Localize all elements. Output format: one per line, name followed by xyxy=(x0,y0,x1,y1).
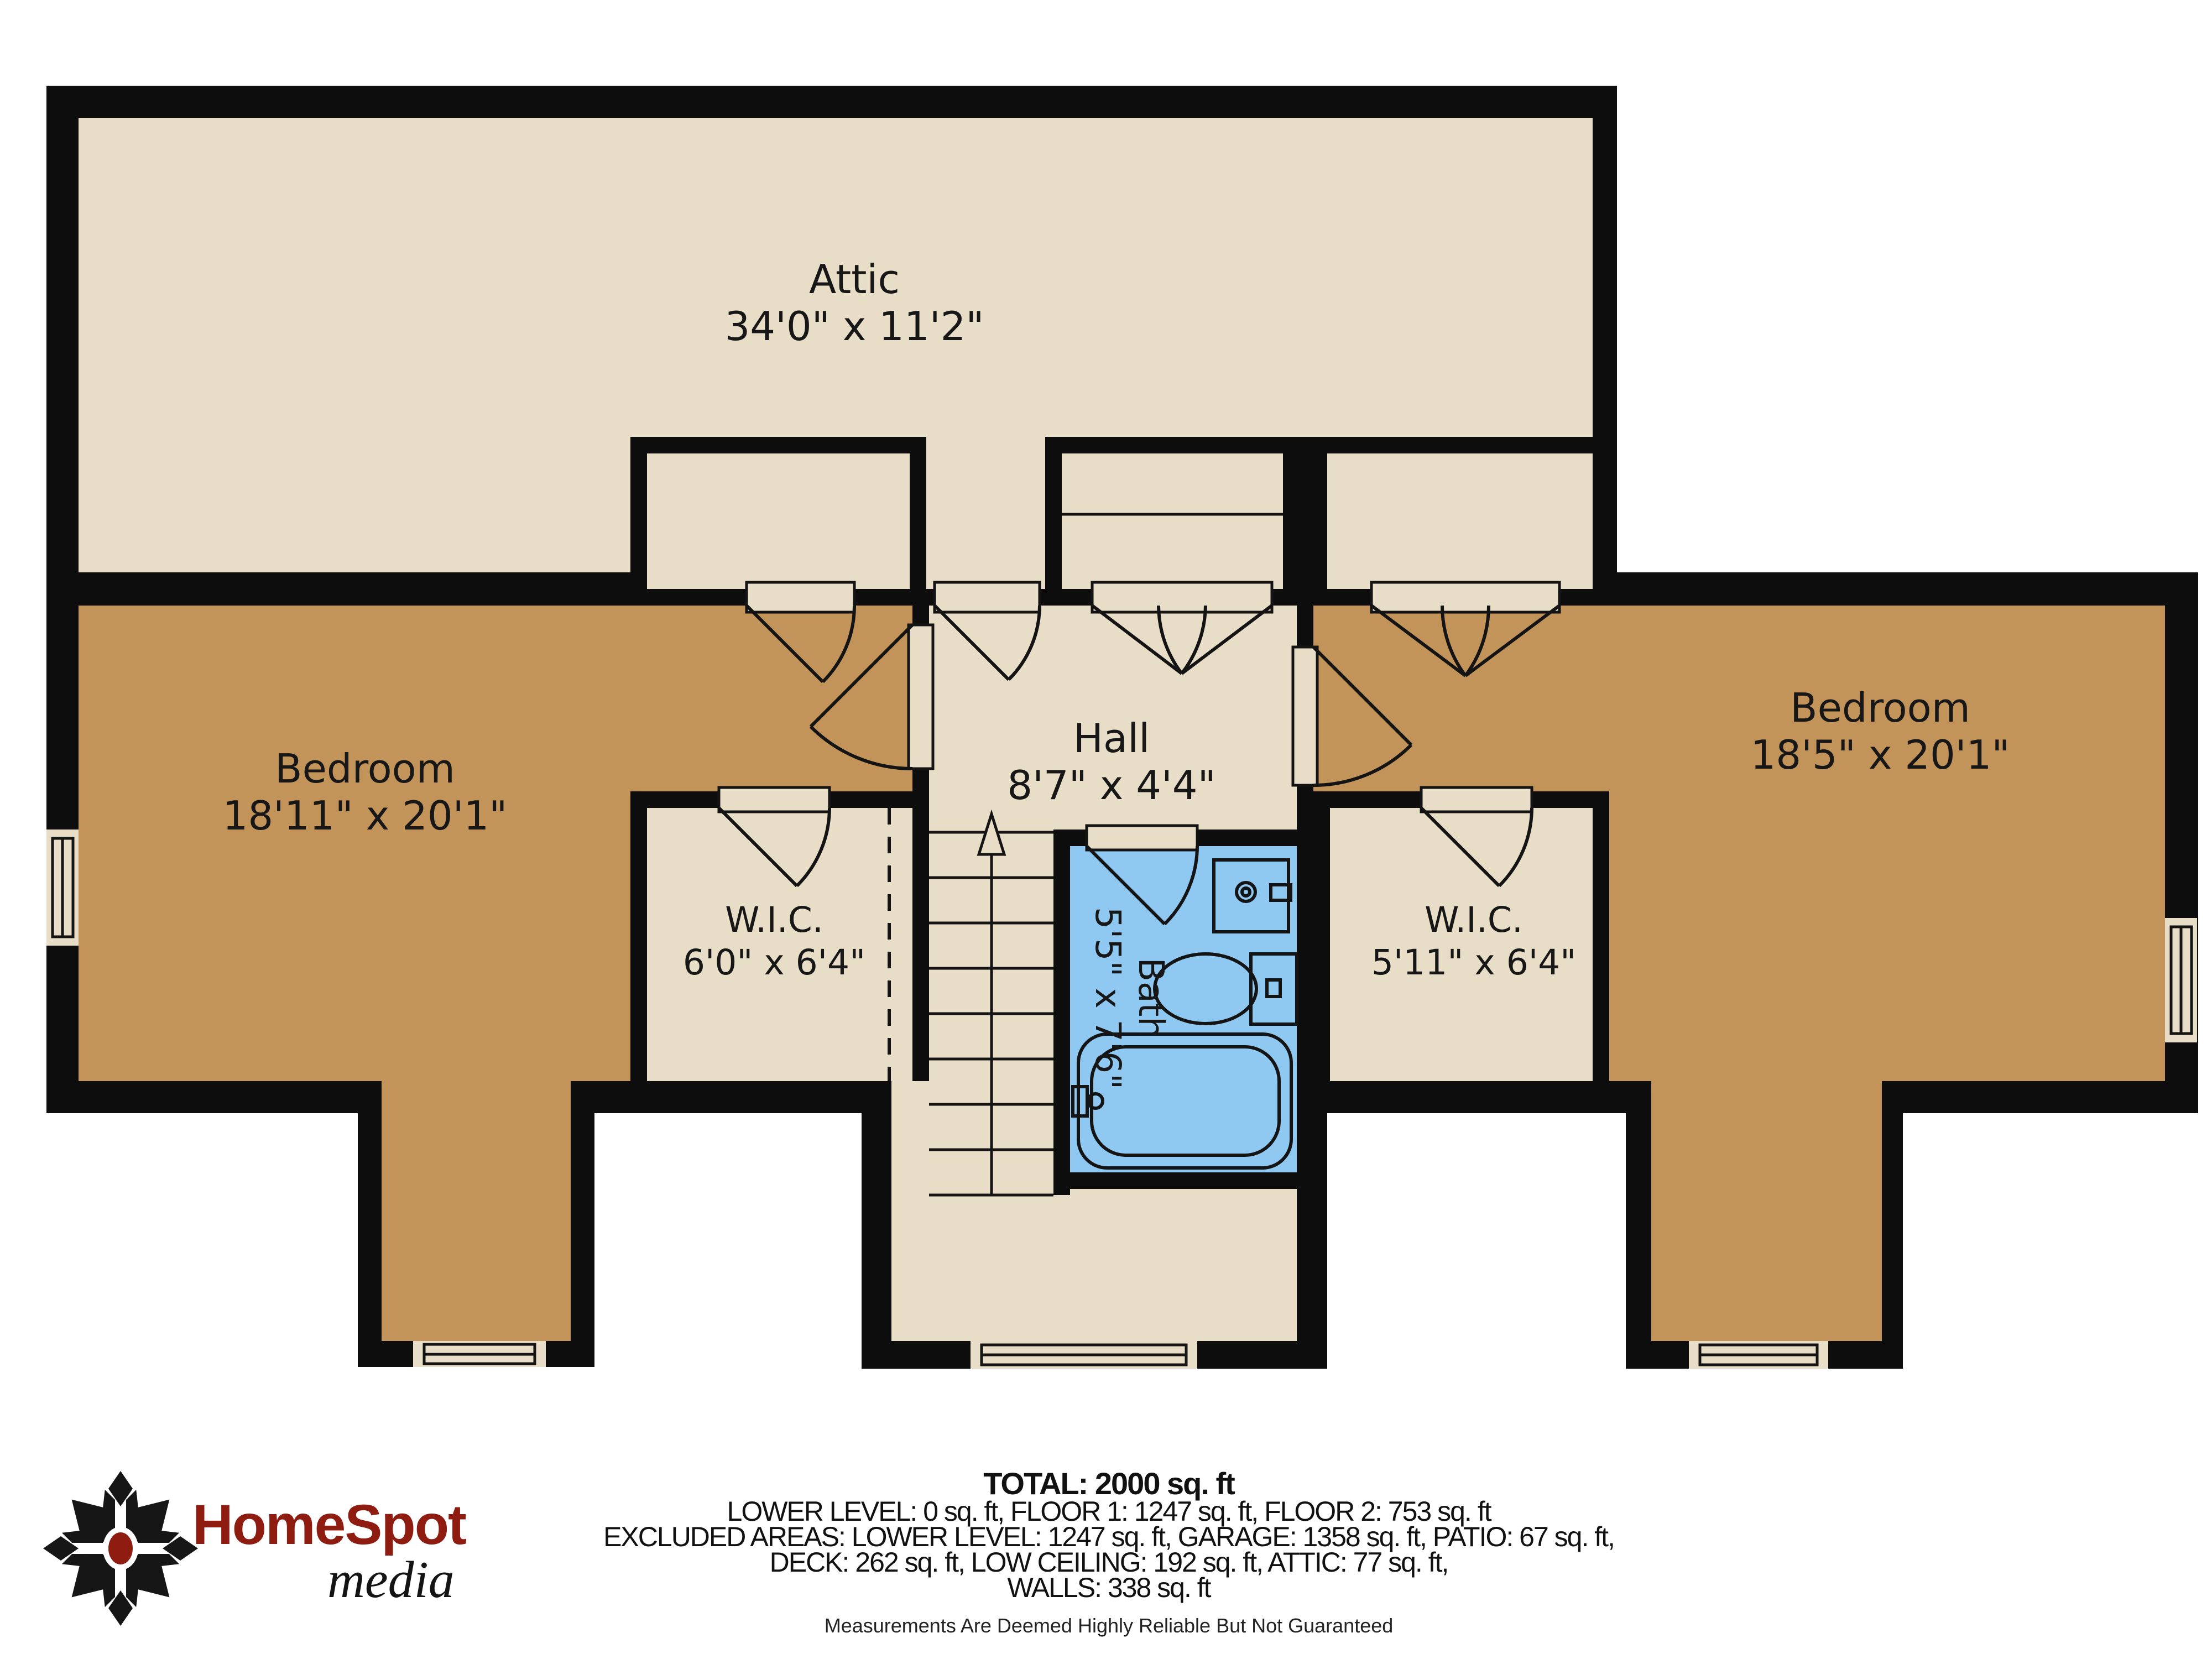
footer: TOTAL: 2000 sq. ft LOWER LEVEL: 0 sq. ft… xyxy=(603,1466,1614,1637)
footer-line-walls: WALLS: 338 sq. ft xyxy=(1007,1572,1211,1603)
room-bedroom-left-bump xyxy=(382,1081,571,1341)
floorplan-canvas: Attic 34'0" x 11'2" Bedroom 18'11" x 20'… xyxy=(0,0,2212,1659)
wic-right-dims: 5'11" x 6'4" xyxy=(1371,942,1576,983)
closet-middle xyxy=(1062,453,1283,589)
bath-dims: 5'5" x 7'6" xyxy=(1088,907,1128,1089)
closet-left xyxy=(647,453,910,589)
logo: HomeSpot media xyxy=(39,1467,466,1630)
footer-disclaimer: Measurements Are Deemed Highly Reliable … xyxy=(825,1614,1394,1637)
sill-wic-right xyxy=(1421,787,1532,812)
hall-dims: 8'7" x 4'4" xyxy=(1007,762,1215,808)
sill-bath xyxy=(1087,826,1197,850)
room-bedroom-right-ext xyxy=(1313,606,1609,791)
window-right-bump xyxy=(1689,1341,1828,1369)
room-bedroom-right xyxy=(1609,606,2165,1081)
closet-right xyxy=(1327,453,1593,589)
wall-bath-bottom xyxy=(1053,1172,1297,1189)
window-left-bedroom xyxy=(46,830,79,946)
room-bedroom-left xyxy=(79,606,630,1081)
attic-label: Attic xyxy=(809,256,900,302)
logo-snowflake-icon xyxy=(39,1467,202,1630)
hall-label: Hall xyxy=(1073,715,1150,761)
sill-hall-east xyxy=(1293,647,1317,785)
wic-left-dims: 6'0" x 6'4" xyxy=(683,942,865,983)
bedroom-left-dims: 18'11" x 20'1" xyxy=(223,792,508,839)
room-attic-left xyxy=(79,118,630,572)
bedroom-right-dims: 18'5" x 20'1" xyxy=(1750,732,2010,778)
wall-stairs-bath xyxy=(1053,830,1070,1195)
attic-dims: 34'0" x 11'2" xyxy=(724,303,984,349)
wic-left-label: W.I.C. xyxy=(725,900,823,940)
sill-wic-left xyxy=(719,787,830,812)
room-bedroom-right-bump xyxy=(1651,1081,1882,1341)
bedroom-right-label: Bedroom xyxy=(1790,685,1970,731)
attic-neck xyxy=(926,437,1045,589)
logo-wordmark: HomeSpot xyxy=(192,1493,466,1556)
sill-closet-left xyxy=(747,582,854,612)
logo-sub-wordmark: media xyxy=(327,1551,455,1609)
wic-right-label: W.I.C. xyxy=(1425,900,1523,940)
sill-attic-neck xyxy=(935,582,1040,612)
window-entry-bump xyxy=(971,1341,1197,1369)
sill-closet-middle xyxy=(1092,582,1272,612)
bath-label: Bath xyxy=(1131,958,1171,1039)
window-right-bedroom xyxy=(2165,918,2197,1042)
sill-hall-west xyxy=(909,625,933,769)
sill-closet-right xyxy=(1371,582,1559,612)
bedroom-left-label: Bedroom xyxy=(275,745,455,792)
floorplan-page: Attic 34'0" x 11'2" Bedroom 18'11" x 20'… xyxy=(0,0,2212,1659)
window-left-bump xyxy=(413,1341,546,1367)
